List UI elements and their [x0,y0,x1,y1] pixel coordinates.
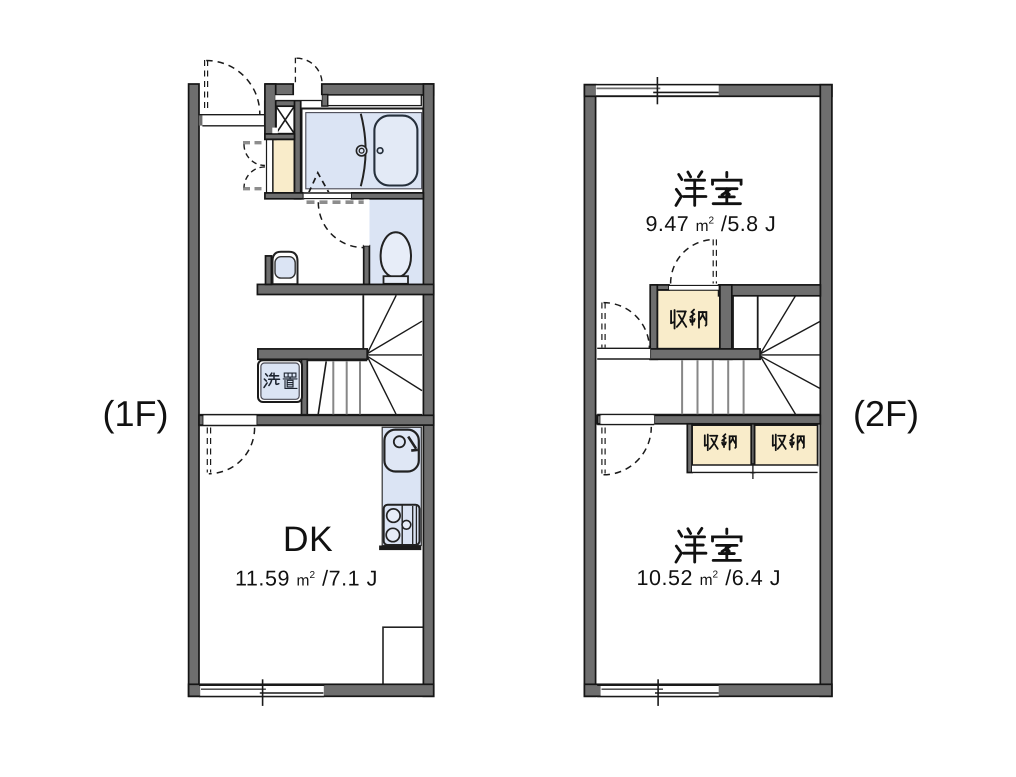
svg-text:(1F): (1F) [103,393,169,434]
svg-text:DK: DK [283,519,333,559]
svg-text:(2F): (2F) [853,393,919,434]
